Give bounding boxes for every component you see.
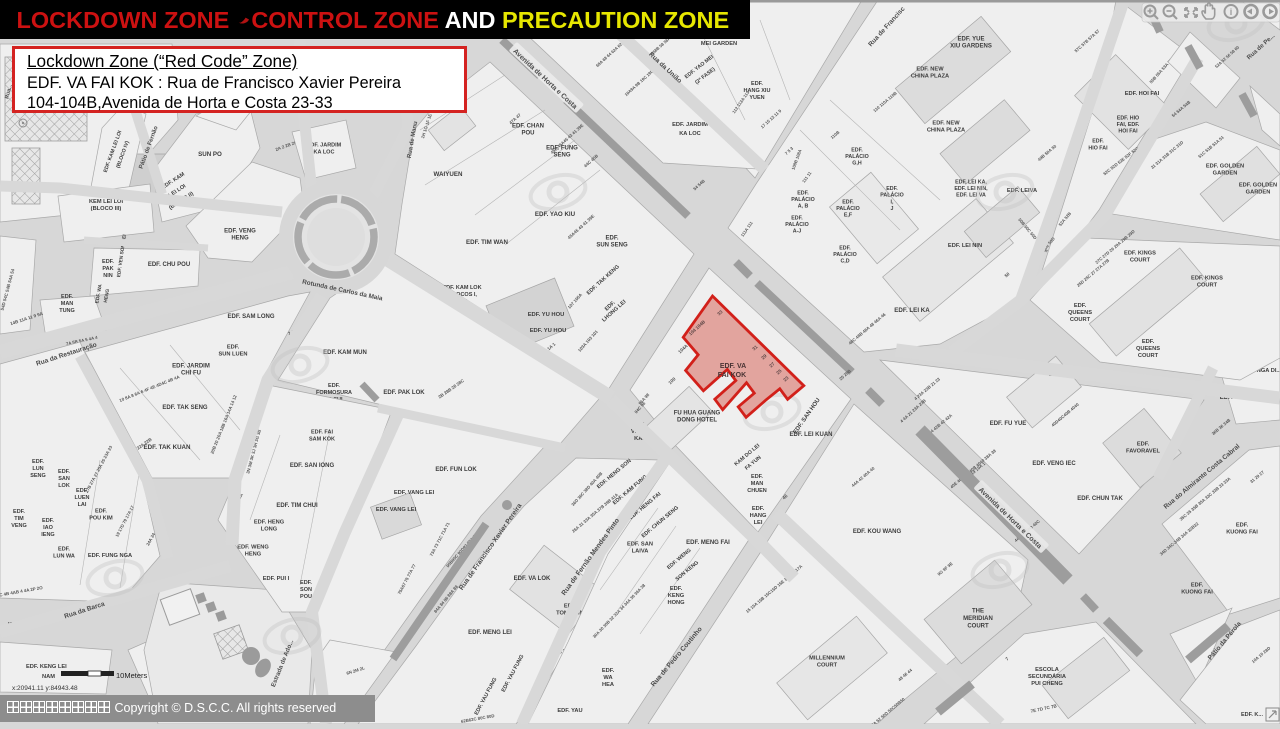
svg-text:PALÁCIO: PALÁCIO [836, 205, 859, 212]
svg-text:HIO FAI: HIO FAI [1088, 145, 1108, 151]
svg-text:FORMOSURA: FORMOSURA [316, 390, 352, 396]
svg-text:EDF.: EDF. [839, 245, 851, 251]
svg-text:CHUEN: CHUEN [747, 488, 767, 494]
svg-text:C,D: C,D [840, 259, 849, 265]
svg-text:GARDEN: GARDEN [1213, 171, 1238, 177]
svg-text:KEM LEI LOI: KEM LEI LOI [89, 199, 124, 205]
svg-text:EDF. GOLDEN: EDF. GOLDEN [1239, 182, 1277, 188]
svg-text:FAI, EDF.: FAI, EDF. [1117, 122, 1140, 128]
svg-text:EDF. JARDIM: EDF. JARDIM [672, 122, 708, 128]
svg-text:LAI: LAI [78, 502, 87, 508]
svg-text:(BLOCO III): (BLOCO III) [91, 206, 122, 212]
svg-text:I,: I, [891, 199, 894, 205]
svg-text:EDF. GOLDEN: EDF. GOLDEN [1206, 163, 1244, 169]
svg-text:ESCOLA: ESCOLA [1035, 667, 1059, 673]
svg-text:EDF.: EDF. [751, 81, 763, 87]
svg-text:EDF. YAU: EDF. YAU [557, 708, 582, 714]
svg-text:PALÁCIO: PALÁCIO [845, 153, 868, 160]
svg-text:EDF. KINGS: EDF. KINGS [1191, 275, 1223, 281]
svg-text:EDF. FUNG NGA: EDF. FUNG NGA [88, 553, 132, 559]
svg-text:EDF. HOI FAI: EDF. HOI FAI [1125, 91, 1160, 97]
svg-text:SAM KOK: SAM KOK [309, 436, 335, 442]
svg-text:LONG: LONG [261, 527, 278, 533]
svg-text:HENG: HENG [245, 552, 262, 558]
svg-text:PALÁCIO: PALÁCIO [791, 196, 814, 203]
svg-text:EDF. YAO KIU: EDF. YAO KIU [535, 211, 576, 218]
svg-text:EDF.: EDF. [102, 259, 114, 265]
svg-text:MAN: MAN [751, 481, 764, 487]
svg-text:NAM: NAM [42, 674, 55, 680]
svg-text:EDF.: EDF. [602, 668, 615, 674]
svg-text:FAVORAVEL: FAVORAVEL [1126, 449, 1160, 455]
svg-text:EDF.: EDF. [42, 518, 54, 524]
svg-text:PAK: PAK [102, 266, 113, 272]
svg-text:EDF. FUN LOK: EDF. FUN LOK [435, 467, 477, 473]
svg-text:EDF.: EDF. [791, 215, 803, 221]
svg-text:EDF.: EDF. [1191, 582, 1204, 588]
svg-text:EDF.: EDF. [751, 474, 763, 480]
svg-text:LUN: LUN [32, 466, 43, 472]
svg-text:EDF. TAK KUAN: EDF. TAK KUAN [144, 444, 192, 451]
svg-text:EDF. VENG IEC: EDF. VENG IEC [1032, 461, 1076, 467]
svg-text:CHINA PLAZA: CHINA PLAZA [927, 128, 965, 134]
svg-text:PALÁCIO: PALÁCIO [833, 251, 856, 258]
svg-text:EDF. NEW: EDF. NEW [916, 66, 944, 72]
svg-text:EDF.: EDF. [1137, 441, 1150, 447]
svg-text:COURT: COURT [967, 623, 989, 629]
svg-text:EDF.: EDF. [886, 186, 898, 192]
svg-text:MERIDIAN: MERIDIAN [963, 616, 993, 622]
svg-text:COURT: COURT [1130, 258, 1151, 264]
svg-text:EDF. VA: EDF. VA [720, 363, 746, 370]
svg-text:EDF. YUE: EDF. YUE [958, 36, 985, 42]
svg-text:DONG HOTEL: DONG HOTEL [677, 418, 717, 424]
svg-text:EDF. PAK LOK: EDF. PAK LOK [383, 390, 425, 396]
svg-text:XIU GARDENS: XIU GARDENS [950, 44, 992, 50]
svg-text:SECUNDÁRIA: SECUNDÁRIA [1028, 673, 1066, 680]
svg-text:VENG: VENG [11, 523, 27, 529]
svg-text:HENG: HENG [231, 236, 249, 242]
svg-text:SAN: SAN [58, 476, 70, 482]
svg-text:EDF.: EDF. [58, 469, 70, 475]
svg-text:EDF. TIM WAN: EDF. TIM WAN [466, 239, 508, 246]
svg-text:CHI FU: CHI FU [181, 371, 201, 377]
svg-text:SUN PO: SUN PO [198, 151, 222, 158]
svg-text:EDF. WENG: EDF. WENG [237, 544, 269, 550]
svg-text:E,F: E,F [844, 213, 853, 219]
svg-text:A-J: A-J [793, 229, 802, 235]
svg-text:EDF.: EDF. [61, 294, 73, 300]
svg-text:PALÁCIO: PALÁCIO [785, 221, 808, 228]
svg-text:QUEENS: QUEENS [1068, 310, 1092, 316]
svg-text:EDF. VANG LEI: EDF. VANG LEI [394, 490, 435, 496]
svg-text:GARDEN: GARDEN [1246, 190, 1271, 196]
svg-text:EDF.: EDF. [13, 509, 25, 515]
svg-text:EDF. LEI NIN: EDF. LEI NIN [948, 243, 982, 249]
svg-text:COURT: COURT [1138, 353, 1159, 359]
svg-text:CHINA PLAZA: CHINA PLAZA [911, 74, 949, 80]
svg-text:IENG: IENG [41, 532, 54, 538]
svg-text:HANG: HANG [750, 513, 767, 519]
svg-text:EDF.: EDF. [1236, 522, 1249, 528]
svg-text:EDF. PUI I: EDF. PUI I [263, 576, 290, 582]
svg-text:KA LOC: KA LOC [679, 131, 701, 137]
svg-text:EDF. FAI: EDF. FAI [311, 430, 333, 436]
svg-text:KUONG FAI: KUONG FAI [1181, 590, 1213, 596]
svg-text:EDF. VANG LEI: EDF. VANG LEI [376, 507, 417, 513]
svg-text:EDF. YU HOU: EDF. YU HOU [530, 328, 567, 334]
svg-text:EDF. SAN: EDF. SAN [627, 541, 653, 547]
svg-text:EDF. LEI VA: EDF. LEI VA [956, 193, 986, 199]
svg-text:LUN WA: LUN WA [53, 553, 75, 559]
svg-text:COURT: COURT [1197, 283, 1218, 289]
svg-text:FAI KOK: FAI KOK [718, 372, 746, 379]
svg-text:EDF. MENG LEI: EDF. MENG LEI [468, 630, 512, 636]
svg-text:EDF.: EDF. [752, 506, 765, 512]
svg-text:A, B: A, B [798, 204, 809, 210]
svg-text:MILLENNIUM: MILLENNIUM [809, 655, 845, 661]
svg-text:PALÁCIO: PALÁCIO [880, 192, 903, 199]
svg-text:IAO: IAO [43, 525, 54, 531]
svg-text:EDF. CHU POU: EDF. CHU POU [148, 262, 190, 268]
svg-text:EDF. CHUN TAK: EDF. CHUN TAK [1077, 496, 1123, 502]
svg-text:EDF. SAM LONG: EDF. SAM LONG [227, 314, 274, 320]
svg-text:POU: POU [521, 131, 534, 137]
svg-text:LEI: LEI [754, 520, 763, 526]
svg-text:SENG: SENG [30, 473, 46, 479]
svg-text:EDF.: EDF. [300, 580, 312, 586]
svg-text:EDF. KINGS: EDF. KINGS [1124, 250, 1156, 256]
svg-text:COURT: COURT [817, 663, 838, 669]
svg-text:FU HUA GUANG: FU HUA GUANG [674, 410, 721, 416]
svg-text:10Meters: 10Meters [116, 671, 148, 680]
svg-text:SUN SENG: SUN SENG [596, 243, 628, 249]
svg-text:EDF. LEI KA: EDF. LEI KA [894, 307, 930, 314]
svg-text:EDF. JARDIM: EDF. JARDIM [172, 363, 210, 369]
svg-text:THE: THE [972, 609, 984, 615]
svg-text:SON: SON [300, 587, 312, 593]
svg-text:YUEN: YUEN [749, 95, 764, 101]
svg-text:POU: POU [300, 594, 312, 600]
svg-text:EDF. VA LOK: EDF. VA LOK [514, 576, 551, 582]
svg-text:EDF. VENG: EDF. VENG [224, 228, 256, 234]
svg-text:EDF.: EDF. [328, 383, 340, 389]
svg-text:EDF. K...: EDF. K... [1241, 712, 1263, 718]
svg-text:EDF.: EDF. [32, 459, 44, 465]
svg-text:EDF. SAN IONG: EDF. SAN IONG [290, 463, 335, 469]
svg-text:TIM: TIM [14, 516, 24, 522]
svg-text:i: i [1230, 7, 1233, 17]
svg-text:HOI FAI: HOI FAI [1118, 129, 1138, 135]
svg-text:EDF. YU HOU: EDF. YU HOU [528, 312, 565, 318]
svg-text:EDF. KOU WANG: EDF. KOU WANG [853, 529, 902, 535]
svg-text:MEI GARDEN: MEI GARDEN [701, 41, 737, 47]
svg-text:x:20941.11 y:84943.48: x:20941.11 y:84943.48 [12, 685, 78, 692]
svg-text:POU KIM: POU KIM [89, 515, 113, 521]
svg-text:WAIYUEN: WAIYUEN [434, 171, 463, 178]
svg-text:MAN: MAN [61, 301, 74, 307]
svg-text:EDF.: EDF. [605, 235, 618, 241]
svg-text:SUN LUEN: SUN LUEN [218, 352, 247, 358]
svg-text:COURT: COURT [1070, 317, 1091, 323]
svg-text:KA LOC: KA LOC [314, 149, 335, 155]
svg-text:EDF. NEW: EDF. NEW [932, 120, 960, 126]
svg-text:EDF.: EDF. [1092, 139, 1104, 145]
svg-text:LAIVA: LAIVA [632, 549, 649, 555]
svg-text:EDF. MENG FAI: EDF. MENG FAI [686, 540, 730, 546]
svg-text:EDF. KENG LEI: EDF. KENG LEI [26, 664, 67, 670]
svg-text:J: J [891, 206, 894, 212]
svg-text:KENG: KENG [668, 593, 685, 599]
svg-text:EDF. HIO: EDF. HIO [1117, 115, 1139, 121]
svg-text:EDF. FU YUE: EDF. FU YUE [990, 421, 1027, 427]
svg-text:EDF.: EDF. [851, 147, 863, 153]
svg-text:G,H: G,H [852, 161, 862, 167]
svg-text:EDF.: EDF. [670, 586, 683, 592]
svg-text:EDF. CHAN: EDF. CHAN [512, 123, 544, 129]
svg-text:EDF.: EDF. [1142, 339, 1155, 345]
svg-text:EDF.: EDF. [95, 509, 107, 515]
svg-text:SENG: SENG [553, 153, 570, 159]
svg-text:HEA: HEA [602, 682, 614, 688]
svg-text:EDF.: EDF. [1074, 303, 1087, 309]
svg-text:HONG: HONG [667, 600, 685, 606]
svg-text:WA: WA [603, 675, 612, 681]
svg-text:EDF. KAM MUN: EDF. KAM MUN [323, 350, 367, 356]
svg-text:EDF.: EDF. [842, 199, 854, 205]
svg-text:EDF. TAK SENG: EDF. TAK SENG [162, 405, 208, 411]
svg-text:EDF.: EDF. [227, 344, 240, 350]
svg-text:KUONG FAI: KUONG FAI [1226, 530, 1258, 536]
svg-text:LOK: LOK [58, 483, 70, 489]
svg-text:EDF.: EDF. [58, 547, 70, 553]
svg-text:PUI CHENG: PUI CHENG [1031, 681, 1063, 687]
svg-text:EDF. HENG: EDF. HENG [254, 519, 285, 525]
svg-text:EDF.: EDF. [797, 190, 809, 196]
svg-text:EDF. TIM CHUI: EDF. TIM CHUI [276, 503, 318, 509]
svg-text:EDF. LEI KUAN: EDF. LEI KUAN [789, 432, 832, 438]
svg-text:LUEN: LUEN [75, 495, 90, 501]
svg-text:TUNG: TUNG [59, 308, 75, 314]
svg-text:NIN: NIN [103, 273, 113, 279]
svg-text:QUEENS: QUEENS [1136, 346, 1160, 352]
